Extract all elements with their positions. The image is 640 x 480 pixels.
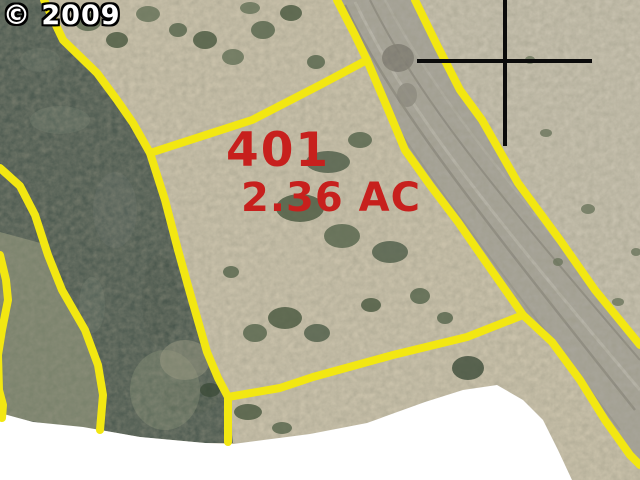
aerial-photo-backdrop bbox=[0, 0, 640, 480]
parcel-area-label: 2.36 AC bbox=[241, 178, 421, 218]
copyright-label: © 2009 bbox=[3, 2, 121, 29]
parcel-number-label: 401 bbox=[226, 127, 330, 174]
aerial-parcel-map: © 2009 401 2.36 AC bbox=[0, 0, 640, 480]
